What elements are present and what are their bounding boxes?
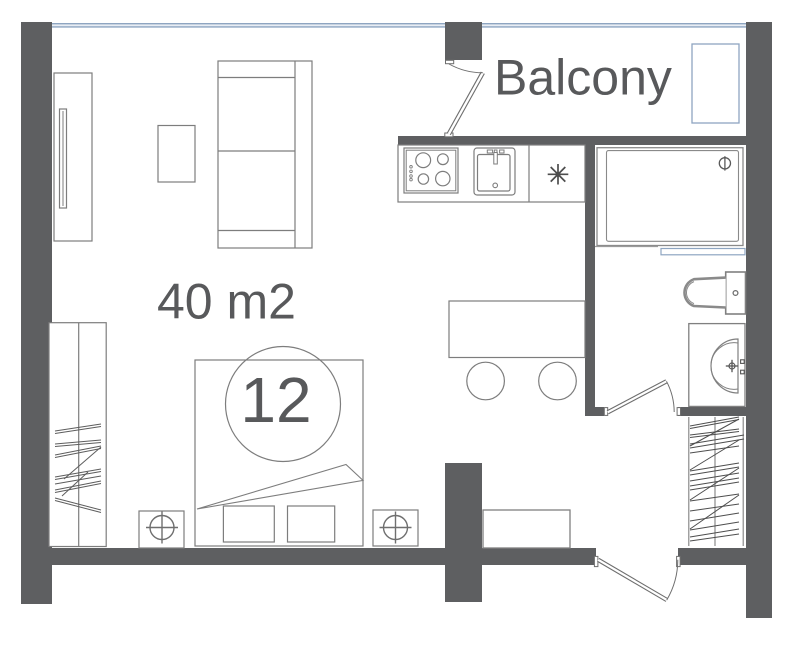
svg-text:12: 12 [240,364,311,436]
svg-text:40 m2: 40 m2 [157,274,296,330]
svg-text:Balcony: Balcony [494,49,672,105]
